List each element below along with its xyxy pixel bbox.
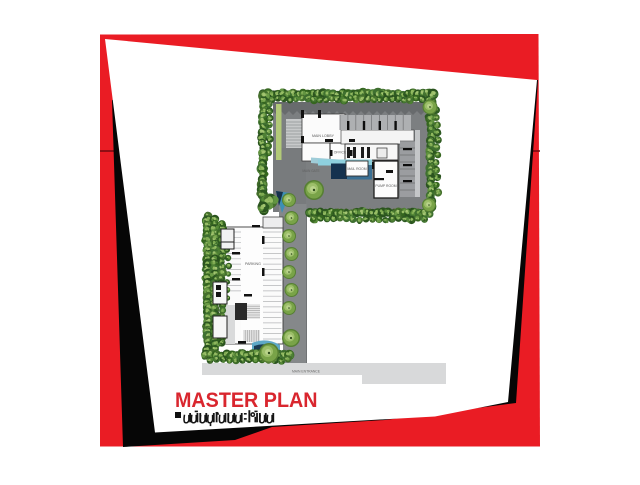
svg-text:OFFICE: OFFICE xyxy=(334,151,347,155)
svg-text:MAIL ROOM: MAIL ROOM xyxy=(347,167,366,171)
svg-text:MAIN GATE: MAIN GATE xyxy=(302,169,319,173)
svg-text:MAIN ENTRANCE: MAIN ENTRANCE xyxy=(292,370,321,374)
svg-text:MAIN LOBBY: MAIN LOBBY xyxy=(312,134,335,138)
svg-text:MASTER PLAN: MASTER PLAN xyxy=(175,389,318,412)
svg-text:PARKING: PARKING xyxy=(245,262,261,266)
svg-text:PUMP ROOM: PUMP ROOM xyxy=(375,184,396,188)
